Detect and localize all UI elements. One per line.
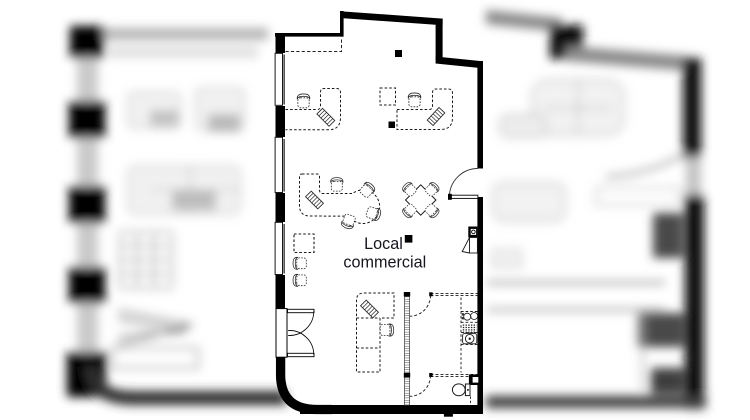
svg-text:commercial: commercial bbox=[343, 253, 426, 271]
svg-text:Local: Local bbox=[364, 235, 403, 253]
